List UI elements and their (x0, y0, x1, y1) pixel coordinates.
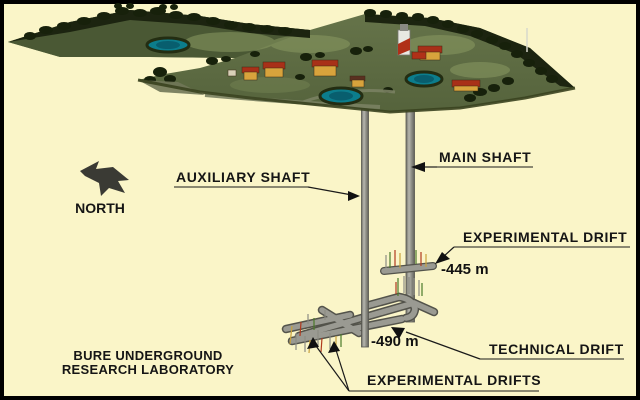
experimental-drifts-label: EXPERIMENTAL DRIFTS (367, 372, 541, 388)
caption-line-2: RESEARCH LABORATORY (40, 363, 256, 377)
auxiliary-shaft-graphic (362, 100, 369, 347)
diagram-canvas: AUXILIARY SHAFT MAIN SHAFT EXPERIMENTAL … (0, 0, 640, 400)
north-arrow-icon (80, 161, 129, 196)
experimental-drift-label: EXPERIMENTAL DRIFT (463, 229, 627, 245)
main-shaft-graphic (406, 94, 415, 322)
technical-drift-label: TECHNICAL DRIFT (489, 341, 624, 357)
depth-490-label: -490 m (371, 333, 419, 350)
caption-line-1: BURE UNDERGROUND (40, 349, 256, 363)
auxiliary-shaft-leader (174, 187, 360, 201)
surface-site-graphic (8, 3, 575, 112)
depth-445-label: -445 m (441, 261, 489, 278)
auxiliary-shaft-label: AUXILIARY SHAFT (176, 169, 310, 185)
north-label: NORTH (69, 200, 131, 216)
laboratory-caption: BURE UNDERGROUND RESEARCH LABORATORY (40, 349, 256, 377)
main-shaft-label: MAIN SHAFT (439, 149, 531, 165)
